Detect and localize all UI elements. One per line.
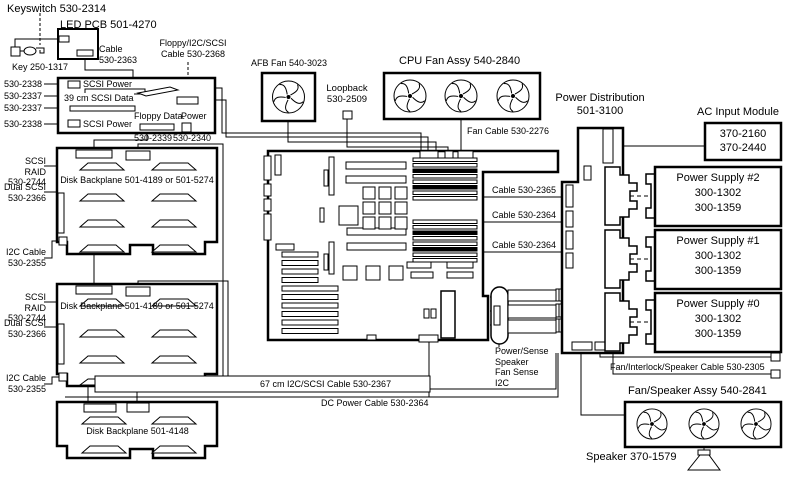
power-supply-1-part1: 300-1302: [655, 249, 781, 264]
cpu-fan-assy-box: [384, 73, 540, 119]
cable-2365-label: Cable 530-2365: [492, 185, 556, 196]
fan-interlock-cable-label: Fan/Interlock/Speaker Cable 530-2305: [610, 362, 765, 373]
power-supply-2: Power Supply #2 300-1302 300-1359: [655, 171, 781, 216]
afb-fan-label: AFB Fan 540-3023: [251, 58, 327, 69]
i2c-scsi-cable-label: 67 cm I2C/SCSI Cable 530-2367: [260, 379, 391, 390]
diagram: Keyswitch 530-2314 LED PCB 501-4270 Key …: [0, 0, 790, 477]
dual-scsi-1-label: Dual SCSI 530-2366: [2, 182, 46, 203]
fan-icon: [497, 80, 529, 112]
disk-backplane-1: [57, 148, 217, 254]
fan-icon: [689, 409, 719, 439]
scsi-power-top-label: SCSI Power: [83, 79, 132, 90]
loopback-plug: [343, 111, 352, 119]
fan-icon: [394, 80, 426, 112]
speaker-label: Speaker 370-1579: [586, 451, 677, 464]
fan-speaker-assy-box: [625, 402, 781, 447]
power-conn-label: 530-2340: [173, 133, 211, 144]
power-supply-0: Power Supply #0 300-1302 300-1359: [655, 297, 781, 342]
ac-input-module-label: AC Input Module: [697, 106, 779, 119]
power-supply-2-title: Power Supply #2: [655, 171, 781, 186]
afb-fan-box: [262, 73, 315, 121]
power-supply-0-part2: 300-1359: [655, 327, 781, 342]
power-supply-1-title: Power Supply #1: [655, 234, 781, 249]
dc-power-cable-label: DC Power Cable 530-2364: [321, 398, 429, 409]
power-supply-0-part1: 300-1302: [655, 312, 781, 327]
led-pcb-box: [58, 29, 98, 59]
cable-2364-a-label: Cable 530-2364: [492, 210, 556, 221]
ac-input-parts: 370-2160 370-2440: [705, 127, 781, 155]
io-left-label-4: 530-2338: [2, 119, 42, 130]
speaker-icon: [688, 450, 720, 470]
power-supply-2-part2: 300-1359: [655, 201, 781, 216]
cable-bundle: [491, 287, 570, 344]
power-label: Power: [181, 111, 207, 122]
fan-icon: [741, 409, 771, 439]
power-sense-label: Power/Sense Speaker Fan Sense I2C: [495, 346, 549, 388]
power-distribution-label: Power Distribution 501-3100: [545, 92, 655, 118]
i2c-cable-2-label: I2C Cable 530-2355: [2, 373, 46, 394]
fan-icon: [445, 80, 477, 112]
cpu-fan-assy-label: CPU Fan Assy 540-2840: [399, 55, 520, 68]
io-board-box: [58, 78, 215, 133]
power-supply-2-part1: 300-1302: [655, 186, 781, 201]
cable-2363-label: Cable 530-2363: [99, 44, 137, 65]
dual-scsi-2-label: Dual SCSI 530-2366: [2, 318, 46, 339]
floppy-data-label: Floppy Data.: [134, 111, 185, 122]
disk-backplane-2: [57, 284, 217, 386]
io-left-label-2: 530-2337: [2, 91, 42, 102]
io-left-label-3: 530-2337: [2, 103, 42, 114]
i2c-cable-1-label: I2C Cable 530-2355: [2, 247, 46, 268]
floppy-conn-label: 530-2339: [134, 133, 172, 144]
power-supply-1-part2: 300-1359: [655, 264, 781, 279]
keyswitch-label: Keyswitch 530-2314: [7, 3, 106, 16]
led-pcb-label: LED PCB 501-4270: [60, 19, 157, 32]
cable-2364-b-label: Cable 530-2364: [492, 240, 556, 251]
fan-speaker-assy-label: Fan/Speaker Assy 540-2841: [628, 385, 767, 398]
power-supply-0-title: Power Supply #0: [655, 297, 781, 312]
fan-icon: [637, 409, 667, 439]
fan-cable-label: Fan Cable 530-2276: [467, 126, 549, 137]
power-supply-1: Power Supply #1 300-1302 300-1359: [655, 234, 781, 279]
fan-icon: [273, 81, 305, 113]
loopback-label: Loopback 530-2509: [315, 83, 379, 105]
scsi-data-label: 39 cm SCSI Data: [64, 93, 134, 104]
io-left-label-1: 530-2338: [2, 79, 42, 90]
scsi-power-bottom-label: SCSI Power: [83, 119, 132, 130]
floppy-cable-label: Floppy/I2C/SCSI Cable 530-2368: [150, 38, 236, 59]
keyswitch-key-icon: [11, 47, 44, 56]
backplane-1-label: Disk Backplane 501-4189 or 501-5274: [57, 175, 217, 186]
key-label: Key 250-1317: [12, 62, 68, 73]
backplane-3-label: Disk Backplane 501-4148: [60, 426, 215, 437]
backplane-2-label: Disk Backplane 501-4189 or 501-5274: [57, 301, 217, 312]
